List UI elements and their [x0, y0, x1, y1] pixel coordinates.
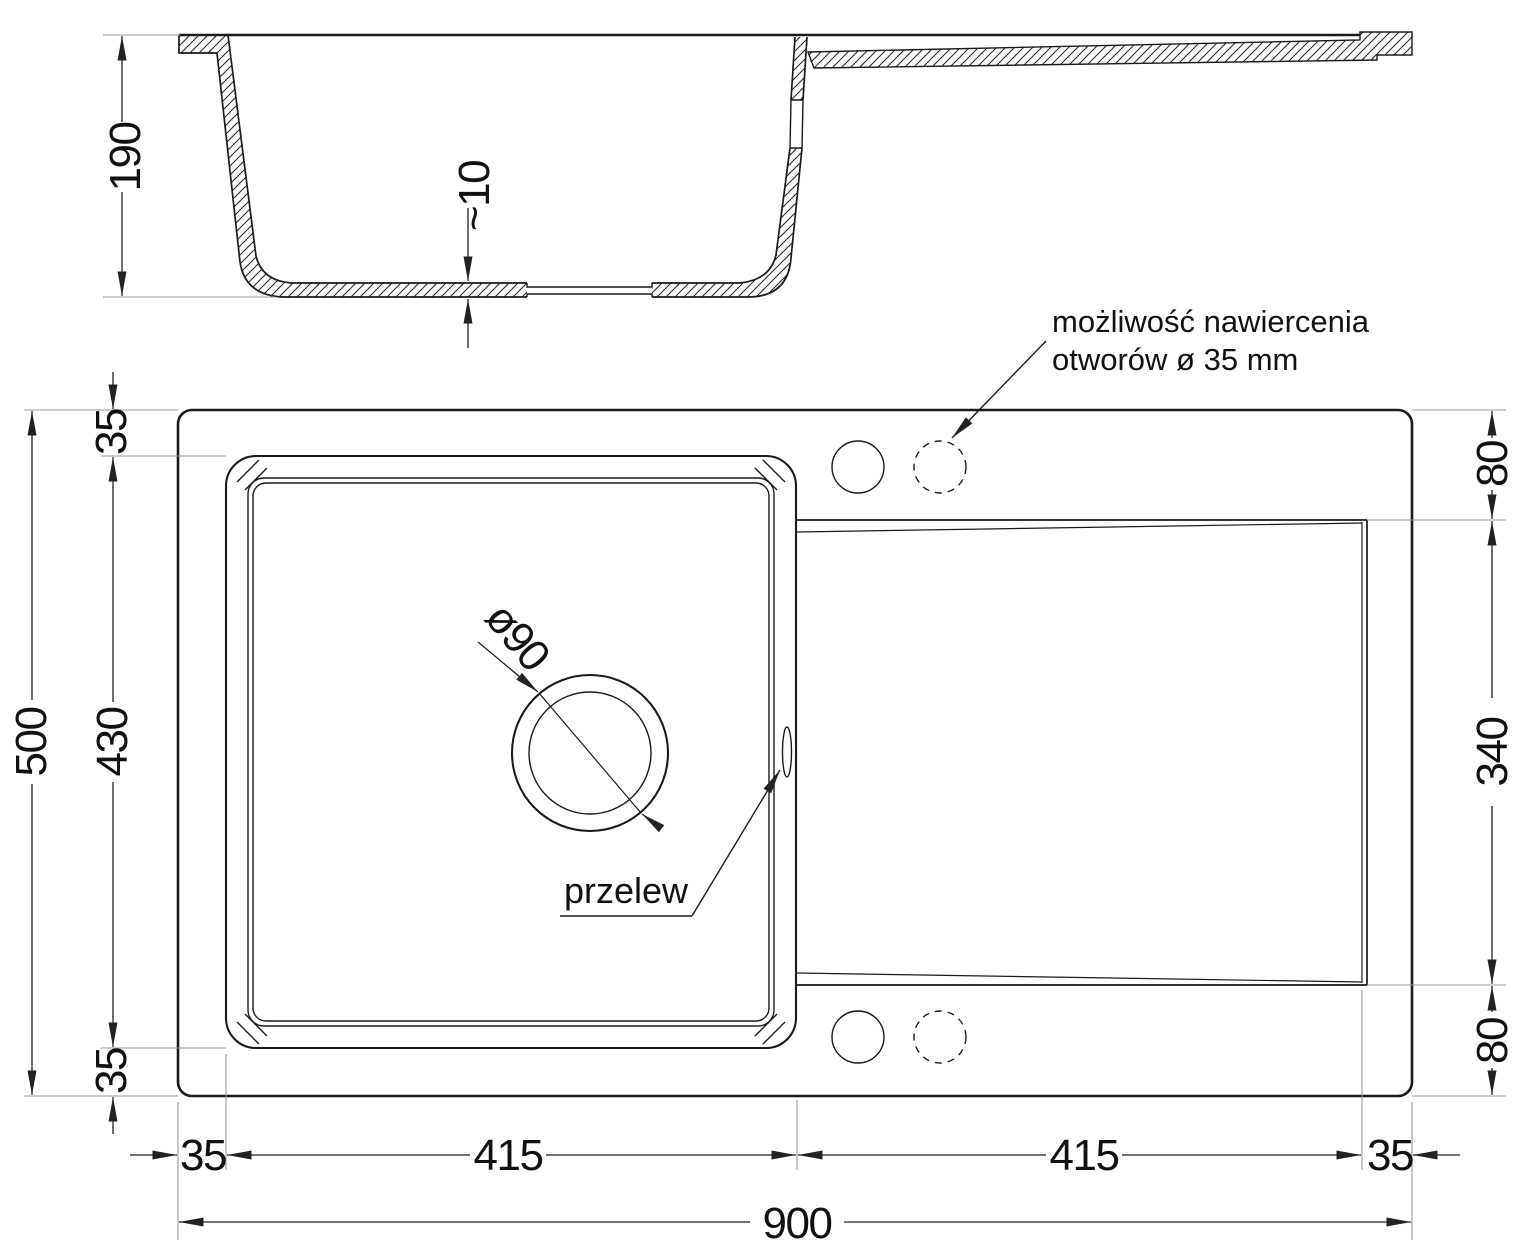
drainer-top-offset-value: 80 — [1468, 441, 1517, 487]
drainer-length-value: 340 — [1468, 718, 1517, 787]
plan-view: ø90 przelew możliwość nawiercenia otworó… — [178, 304, 1412, 1096]
overflow-label: przelew — [564, 870, 689, 911]
drainboard — [796, 520, 1367, 985]
dimension-bottom-row: 35 415 415 35 — [130, 1131, 1460, 1180]
drawing-page: 190 ~10 ø90 przelew — [0, 0, 1526, 1248]
section-view: 190 ~10 — [101, 32, 1412, 348]
depth-value: 190 — [101, 123, 150, 192]
section-left-inner-profile — [228, 35, 527, 283]
margin-top-value: 35 — [87, 409, 136, 455]
dimension-35-top: 35 — [87, 372, 136, 455]
drain-diameter-label: ø90 — [475, 594, 558, 680]
margin-left-value: 35 — [180, 1131, 226, 1180]
dimension-80-top: 80 — [1468, 411, 1517, 519]
overall-width-value: 900 — [763, 1199, 832, 1248]
bowl-width-value: 415 — [474, 1131, 543, 1180]
faucet-hole-top — [832, 441, 884, 493]
drainer-width-value: 415 — [1050, 1131, 1119, 1180]
margin-bottom-value: 35 — [87, 1048, 136, 1094]
dimension-80-bottom: 80 — [1468, 986, 1517, 1095]
bowl — [226, 456, 796, 1048]
section-right-inner-profile — [652, 148, 790, 283]
callout-drain-diameter: ø90 — [475, 594, 658, 826]
drainer-bottom-offset-value: 80 — [1468, 1018, 1517, 1064]
optional-hole-bottom — [914, 1011, 966, 1063]
dimension-thickness-10: ~10 — [450, 161, 499, 348]
callout-overflow: przelew — [560, 770, 780, 916]
thickness-value: ~10 — [450, 161, 499, 231]
plan-dimensions: 500 430 35 35 80 340 — [7, 372, 1517, 1248]
section-drain-recess — [527, 283, 652, 297]
margin-right-value: 35 — [1367, 1131, 1413, 1180]
drill-note-line2: otworów ø 35 mm — [1052, 342, 1298, 377]
faucet-holes — [832, 441, 966, 1063]
dimension-340: 340 — [1468, 521, 1517, 984]
drill-note-line1: możliwość nawiercenia — [1052, 304, 1370, 339]
optional-hole-top — [914, 441, 966, 493]
overall-depth-value: 500 — [7, 708, 56, 777]
drill-note: możliwość nawiercenia otworów ø 35 mm — [952, 304, 1370, 438]
faucet-hole-bottom — [832, 1011, 884, 1063]
dimension-35-bottom: 35 — [87, 1048, 136, 1134]
overflow-hole — [783, 727, 792, 777]
section-overflow-hole — [790, 100, 803, 148]
sink-technical-drawing: 190 ~10 ø90 przelew — [0, 0, 1526, 1248]
dimension-500: 500 — [7, 411, 56, 1095]
bowl-depth-value: 430 — [88, 708, 137, 777]
dimension-430: 430 — [88, 457, 137, 1047]
dimension-900: 900 — [179, 1199, 1411, 1248]
